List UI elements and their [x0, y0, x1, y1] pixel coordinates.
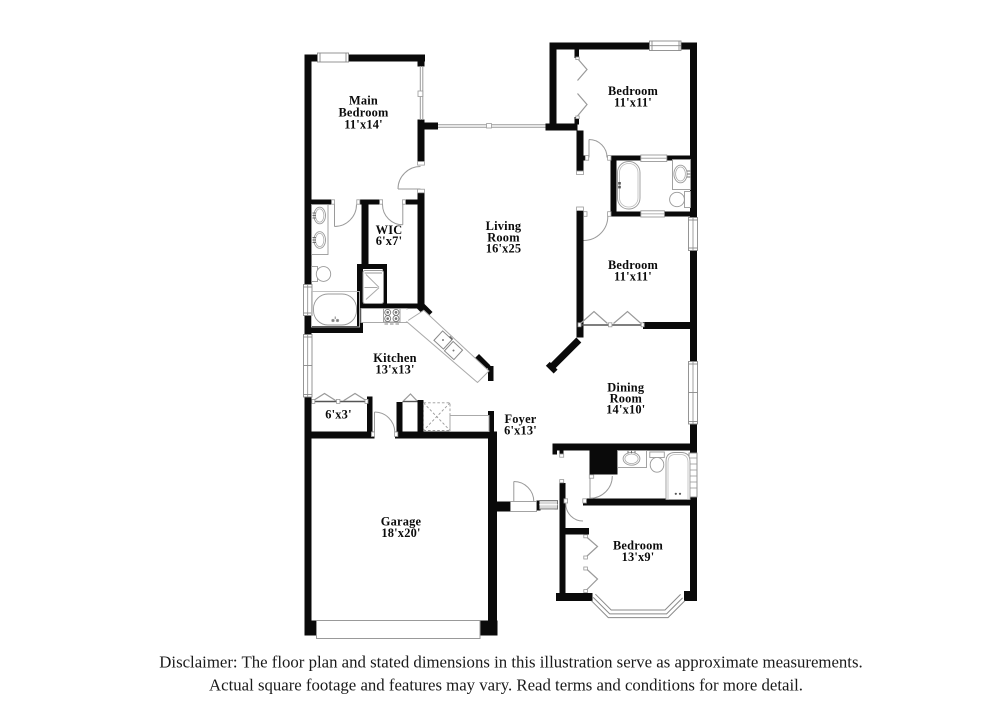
svg-text:13'x9': 13'x9': [622, 550, 655, 564]
svg-text:6'x13': 6'x13': [504, 423, 537, 437]
svg-text:16'x25: 16'x25: [486, 242, 522, 256]
svg-text:6'x3': 6'x3': [325, 408, 351, 422]
svg-text:13'x13': 13'x13': [375, 363, 414, 377]
svg-text:Actual square footage and feat: Actual square footage and features may v…: [209, 676, 803, 695]
svg-text:11'x11': 11'x11': [614, 95, 652, 109]
svg-text:6'x7': 6'x7': [376, 234, 402, 248]
svg-text:14'x10': 14'x10': [606, 403, 645, 417]
svg-text:11'x14': 11'x14': [344, 118, 383, 132]
svg-text:18'x20': 18'x20': [381, 526, 420, 540]
svg-text:Disclaimer: The floor plan and: Disclaimer: The floor plan and stated di…: [159, 653, 862, 672]
svg-text:11'x11': 11'x11': [614, 270, 652, 284]
